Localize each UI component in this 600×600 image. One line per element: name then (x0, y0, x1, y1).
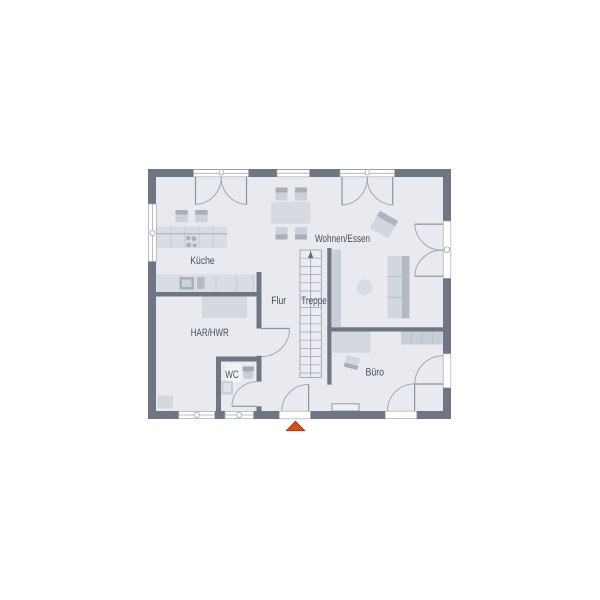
svg-text:Büro: Büro (366, 366, 385, 378)
svg-text:HAR/HWR: HAR/HWR (191, 327, 229, 339)
svg-text:Treppe: Treppe (301, 295, 327, 307)
svg-text:Küche: Küche (190, 255, 215, 267)
svg-text:WC: WC (225, 369, 239, 381)
svg-text:Wohnen/Essen: Wohnen/Essen (315, 233, 370, 245)
svg-text:Flur: Flur (271, 295, 286, 307)
